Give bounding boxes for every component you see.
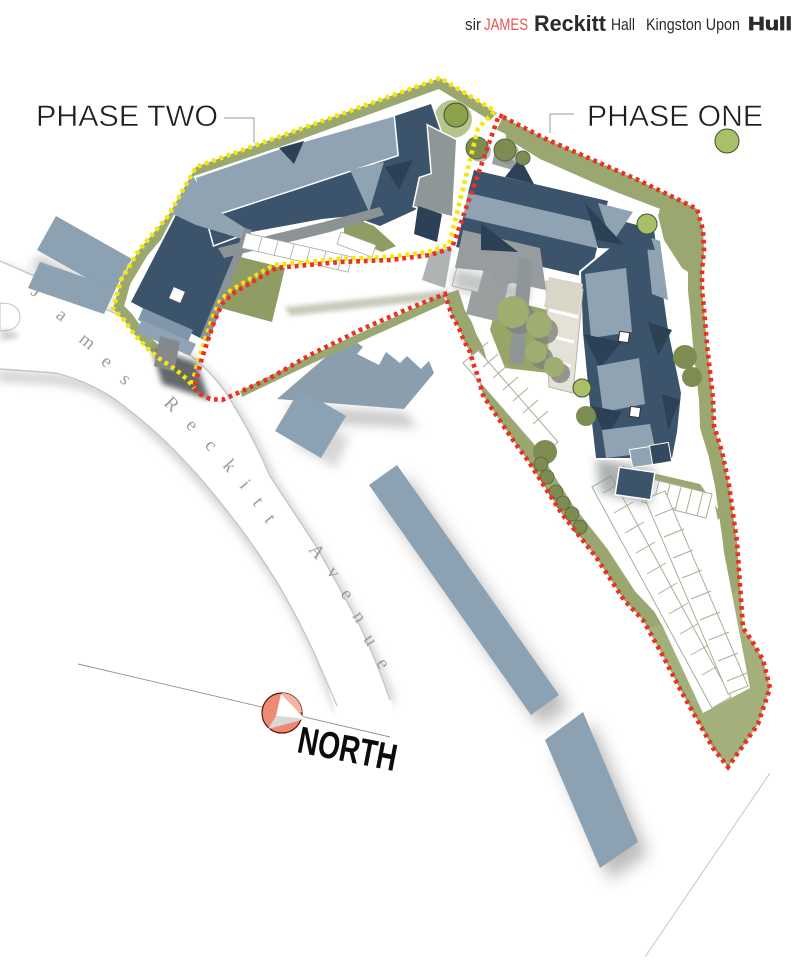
svg-text:Reckitt: Reckitt: [534, 11, 607, 36]
svg-text:PHASE ONE: PHASE ONE: [587, 100, 763, 133]
svg-text:sir: sir: [465, 15, 481, 34]
svg-text:PHASE TWO: PHASE TWO: [36, 100, 218, 133]
svg-text:Hall: Hall: [611, 15, 635, 34]
svg-text:JAMES: JAMES: [484, 15, 528, 34]
svg-text:Kingston Upon: Kingston Upon: [646, 15, 740, 34]
svg-text:Hull: Hull: [748, 14, 792, 34]
